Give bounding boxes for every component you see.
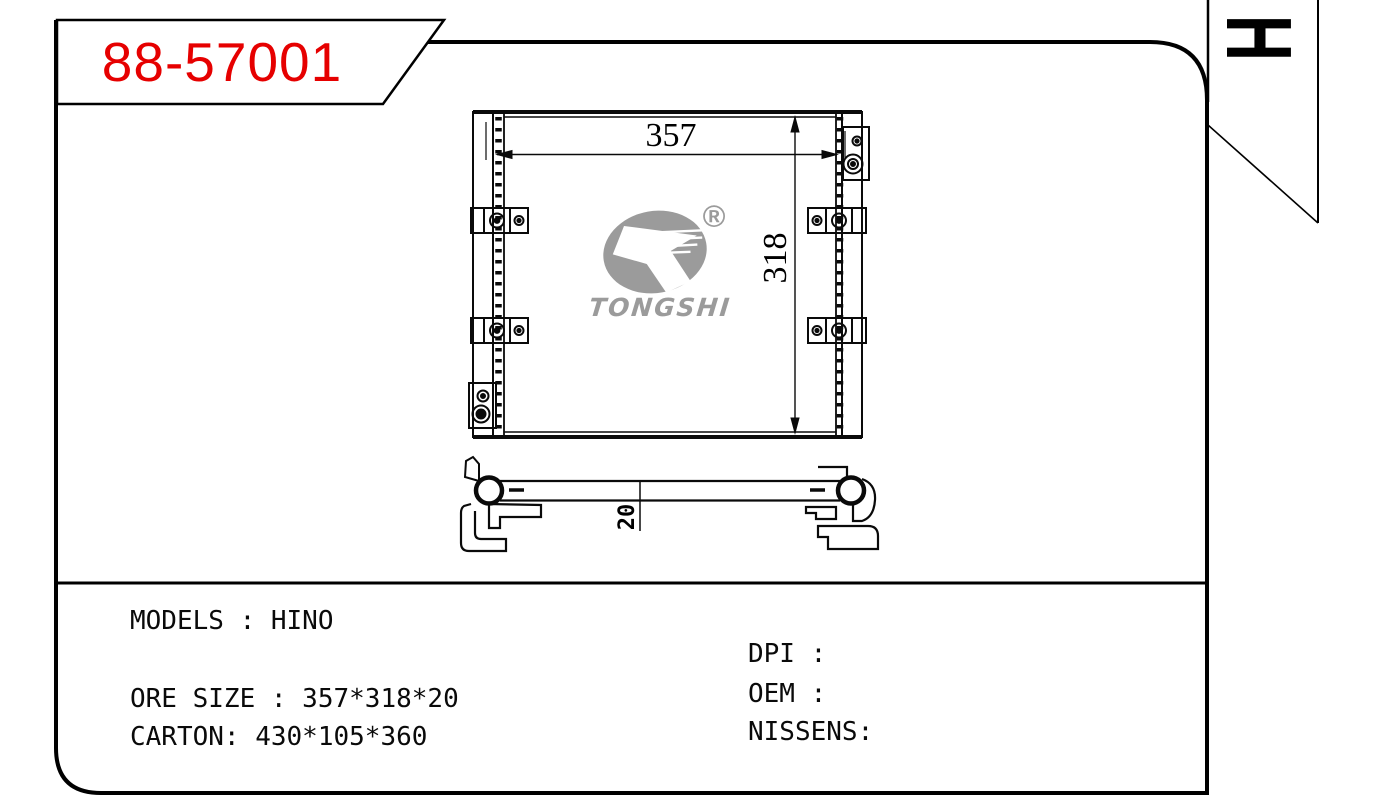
spec-carton-line: CARTON: 430*105*360 [130,721,427,753]
left-end-tab [465,457,479,481]
logo-brand-text: TONGSHI [577,295,744,321]
part-number: 88-57001 [57,33,387,91]
drawing-sheet: 88-57001 H 357 318 20 ® TONGSHI MODELS :… [0,0,1399,810]
spec-core-size-line: ORE SIZE : 357*318*20 [130,683,459,715]
left-tank [473,112,493,437]
right-outer-hook [818,526,878,549]
corner-tab-label: H [1211,3,1307,73]
right-small-hook [806,507,836,519]
spec-nissens-line: NISSENS: [748,716,873,748]
logo-mark [597,203,714,303]
spec-oem-line: OEM : [748,678,826,710]
thickness-dimension-label: 20 [617,491,639,543]
registered-trademark-icon: ® [697,201,731,233]
width-dimension-label: 357 [628,119,714,153]
condenser-side-view [461,457,878,551]
height-dimension-label: 318 [759,215,793,301]
top-right-fitting [843,127,869,180]
spec-models-line: MODELS : HINO [130,605,334,637]
right-port [838,478,864,504]
left-inner-hook [489,504,541,528]
spec-dpi-line: DPI : [748,638,826,670]
